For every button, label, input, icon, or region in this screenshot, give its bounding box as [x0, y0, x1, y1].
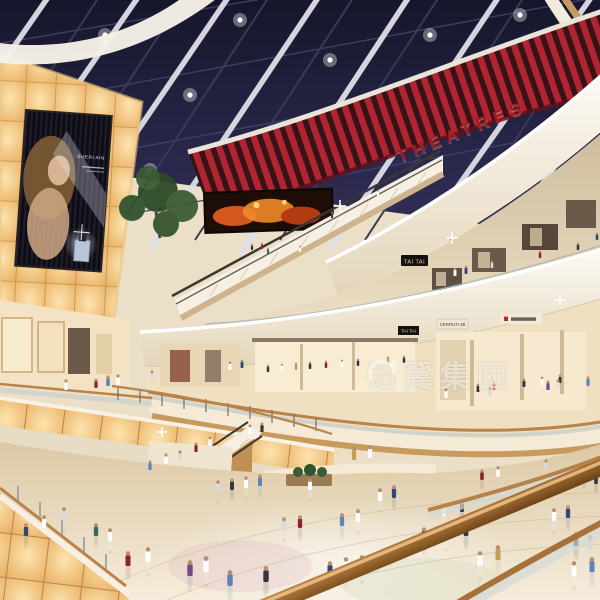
- person: [586, 376, 589, 386]
- person: [556, 379, 559, 389]
- store-sign-red-logo: [500, 314, 542, 324]
- person: [106, 375, 110, 386]
- person: [352, 447, 356, 460]
- person: [229, 362, 232, 370]
- perfume-billboard: GUERLAIN: [15, 110, 112, 272]
- person: [539, 251, 542, 258]
- person: [299, 246, 301, 252]
- person: [341, 360, 344, 367]
- person: [227, 570, 232, 600]
- person: [261, 243, 263, 249]
- person: [241, 360, 244, 368]
- person: [178, 450, 182, 461]
- person: [454, 268, 457, 276]
- person: [403, 356, 406, 363]
- person: [94, 378, 97, 388]
- person: [281, 364, 284, 371]
- person: [208, 436, 211, 446]
- person: [444, 388, 447, 398]
- person: [116, 374, 120, 385]
- person: [596, 233, 599, 240]
- mall-atrium-photo: TAI TAI GUERLAIN: [0, 0, 600, 600]
- person: [357, 359, 360, 366]
- person: [546, 380, 549, 390]
- person: [325, 361, 328, 368]
- person: [541, 377, 544, 385]
- person: [148, 460, 151, 470]
- person: [477, 384, 480, 392]
- person: [387, 357, 390, 364]
- person: [544, 459, 548, 470]
- person: [331, 212, 333, 218]
- person: [465, 266, 468, 274]
- person: [377, 190, 379, 196]
- person: [64, 379, 68, 390]
- svg-text:CERRUTI 88: CERRUTI 88: [440, 322, 466, 327]
- store-sign-tai-tai-lower: TAI TAI: [398, 326, 419, 335]
- person: [251, 244, 253, 250]
- person: [150, 370, 153, 380]
- person: [523, 379, 526, 387]
- person: [260, 422, 263, 432]
- person: [491, 261, 494, 268]
- svg-text:TAI TAI: TAI TAI: [404, 260, 425, 266]
- person: [164, 453, 168, 464]
- person: [493, 382, 496, 390]
- store-sign-tai-tai-upper: TAI TAI: [401, 255, 428, 266]
- person: [267, 365, 270, 372]
- person: [577, 243, 580, 250]
- person: [194, 442, 197, 452]
- person: [309, 362, 312, 369]
- person: [248, 424, 251, 434]
- person: [295, 363, 298, 370]
- person: [267, 248, 269, 254]
- person: [496, 466, 500, 477]
- svg-text:TAI TAI: TAI TAI: [401, 329, 416, 334]
- person: [488, 386, 491, 396]
- store-sign-cerruti: CERRUTI 88: [437, 319, 468, 329]
- person: [368, 445, 372, 458]
- mall-scene: TAI TAI GUERLAIN: [0, 0, 600, 600]
